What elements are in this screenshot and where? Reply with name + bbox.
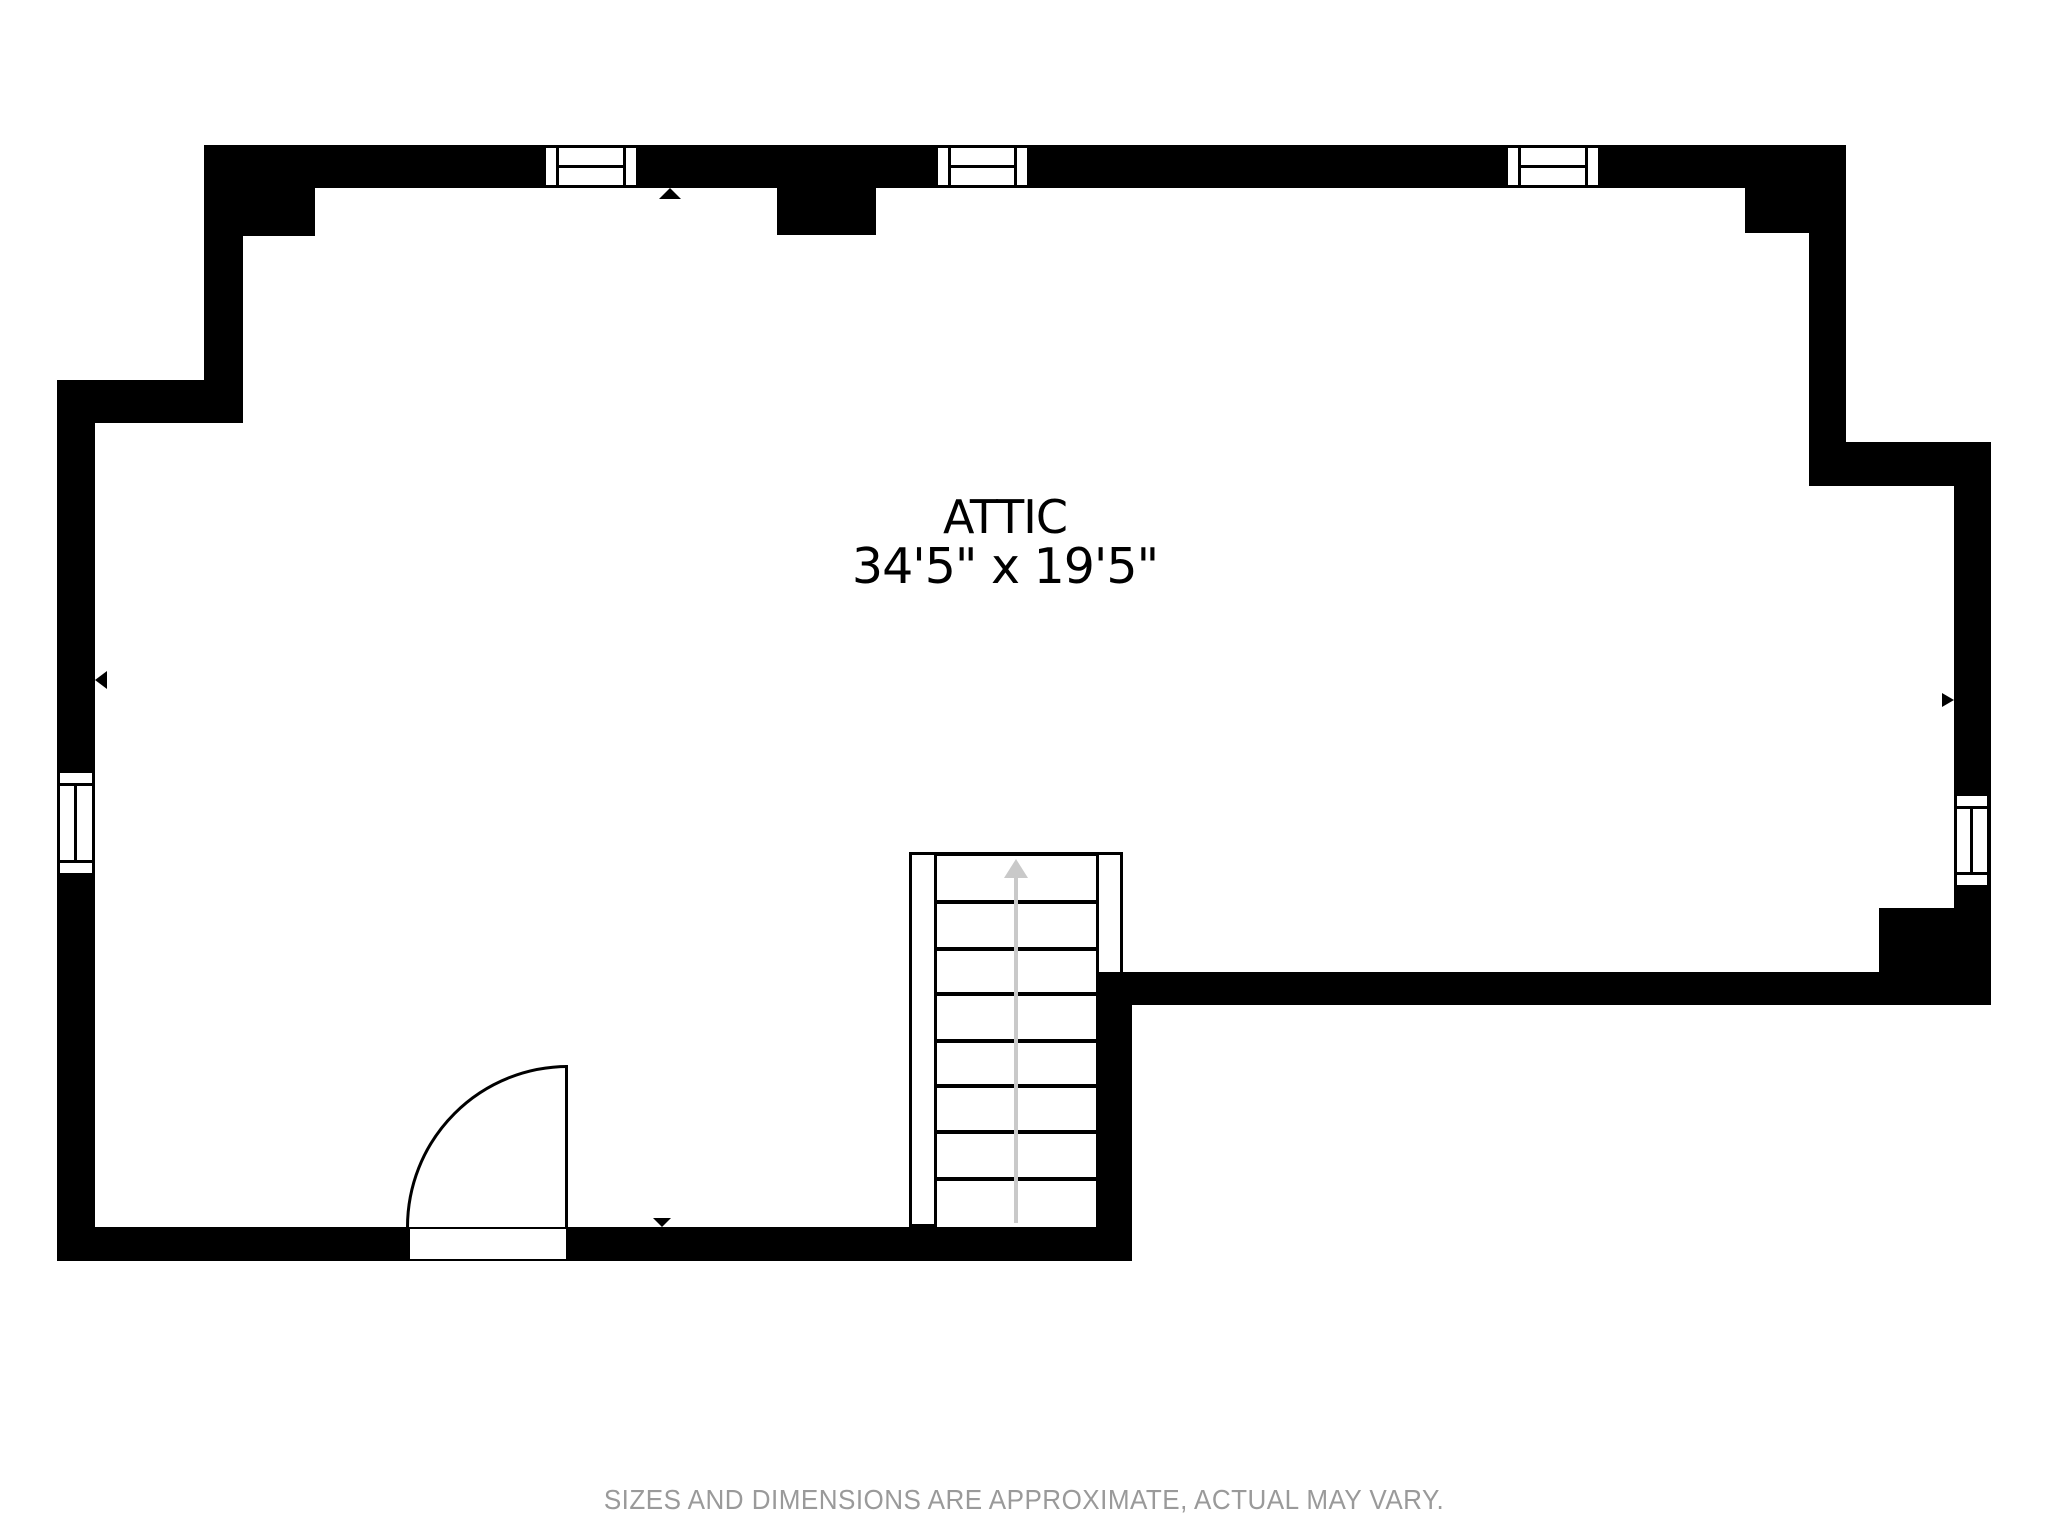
top-window-3-icon	[1505, 145, 1601, 188]
window-frame-line	[558, 165, 624, 168]
top-window-2-icon	[935, 145, 1030, 188]
room-label: ATTIC	[852, 492, 1158, 542]
right-window-icon	[1954, 793, 1990, 888]
top-window-1-icon	[543, 145, 639, 188]
room-dimensions: 34'5" x 19'5"	[852, 542, 1158, 592]
door-swing-arc-icon	[406, 1065, 568, 1227]
window-frame-line	[950, 165, 1015, 168]
room-text-block: ATTIC 34'5" x 19'5"	[852, 492, 1158, 592]
stair-rail-right	[1096, 852, 1123, 975]
up-marker-icon	[659, 188, 681, 199]
wall-step-bottom-right-inner	[1879, 908, 1954, 974]
left-window-icon	[57, 770, 95, 876]
wall-step-top-left-inner	[204, 188, 315, 236]
stairs-up-arrow-shaft	[1014, 876, 1018, 1223]
door-opening	[408, 1227, 568, 1261]
down-marker-icon	[653, 1218, 671, 1227]
stair-rail-left	[909, 852, 937, 1227]
wall-stairwell-right	[1096, 972, 1132, 1261]
wall-bottom-right-section	[1095, 972, 1991, 1005]
stair-tread	[937, 852, 1096, 856]
stairs-up-arrow-icon	[1004, 859, 1028, 878]
left-marker-icon	[95, 671, 107, 689]
window-frame-line	[1970, 808, 1973, 873]
wall-notch-top-left	[777, 188, 876, 235]
wall-right-upper	[1809, 145, 1846, 486]
wall-step-right	[1809, 442, 1991, 486]
floorplan-canvas: ATTIC 34'5" x 19'5" SIZES AND DIMENSIONS…	[0, 0, 2048, 1536]
wall-bottom	[57, 1227, 1132, 1261]
footer-disclaimer: SIZES AND DIMENSIONS ARE APPROXIMATE, AC…	[604, 1484, 1444, 1516]
wall-right-lower	[1954, 486, 1991, 1005]
window-frame-line	[74, 785, 77, 861]
window-frame-line	[1520, 165, 1586, 168]
wall-notch-top-right	[1745, 188, 1809, 233]
right-marker-icon	[1942, 693, 1954, 707]
door-leaf	[565, 1065, 568, 1227]
